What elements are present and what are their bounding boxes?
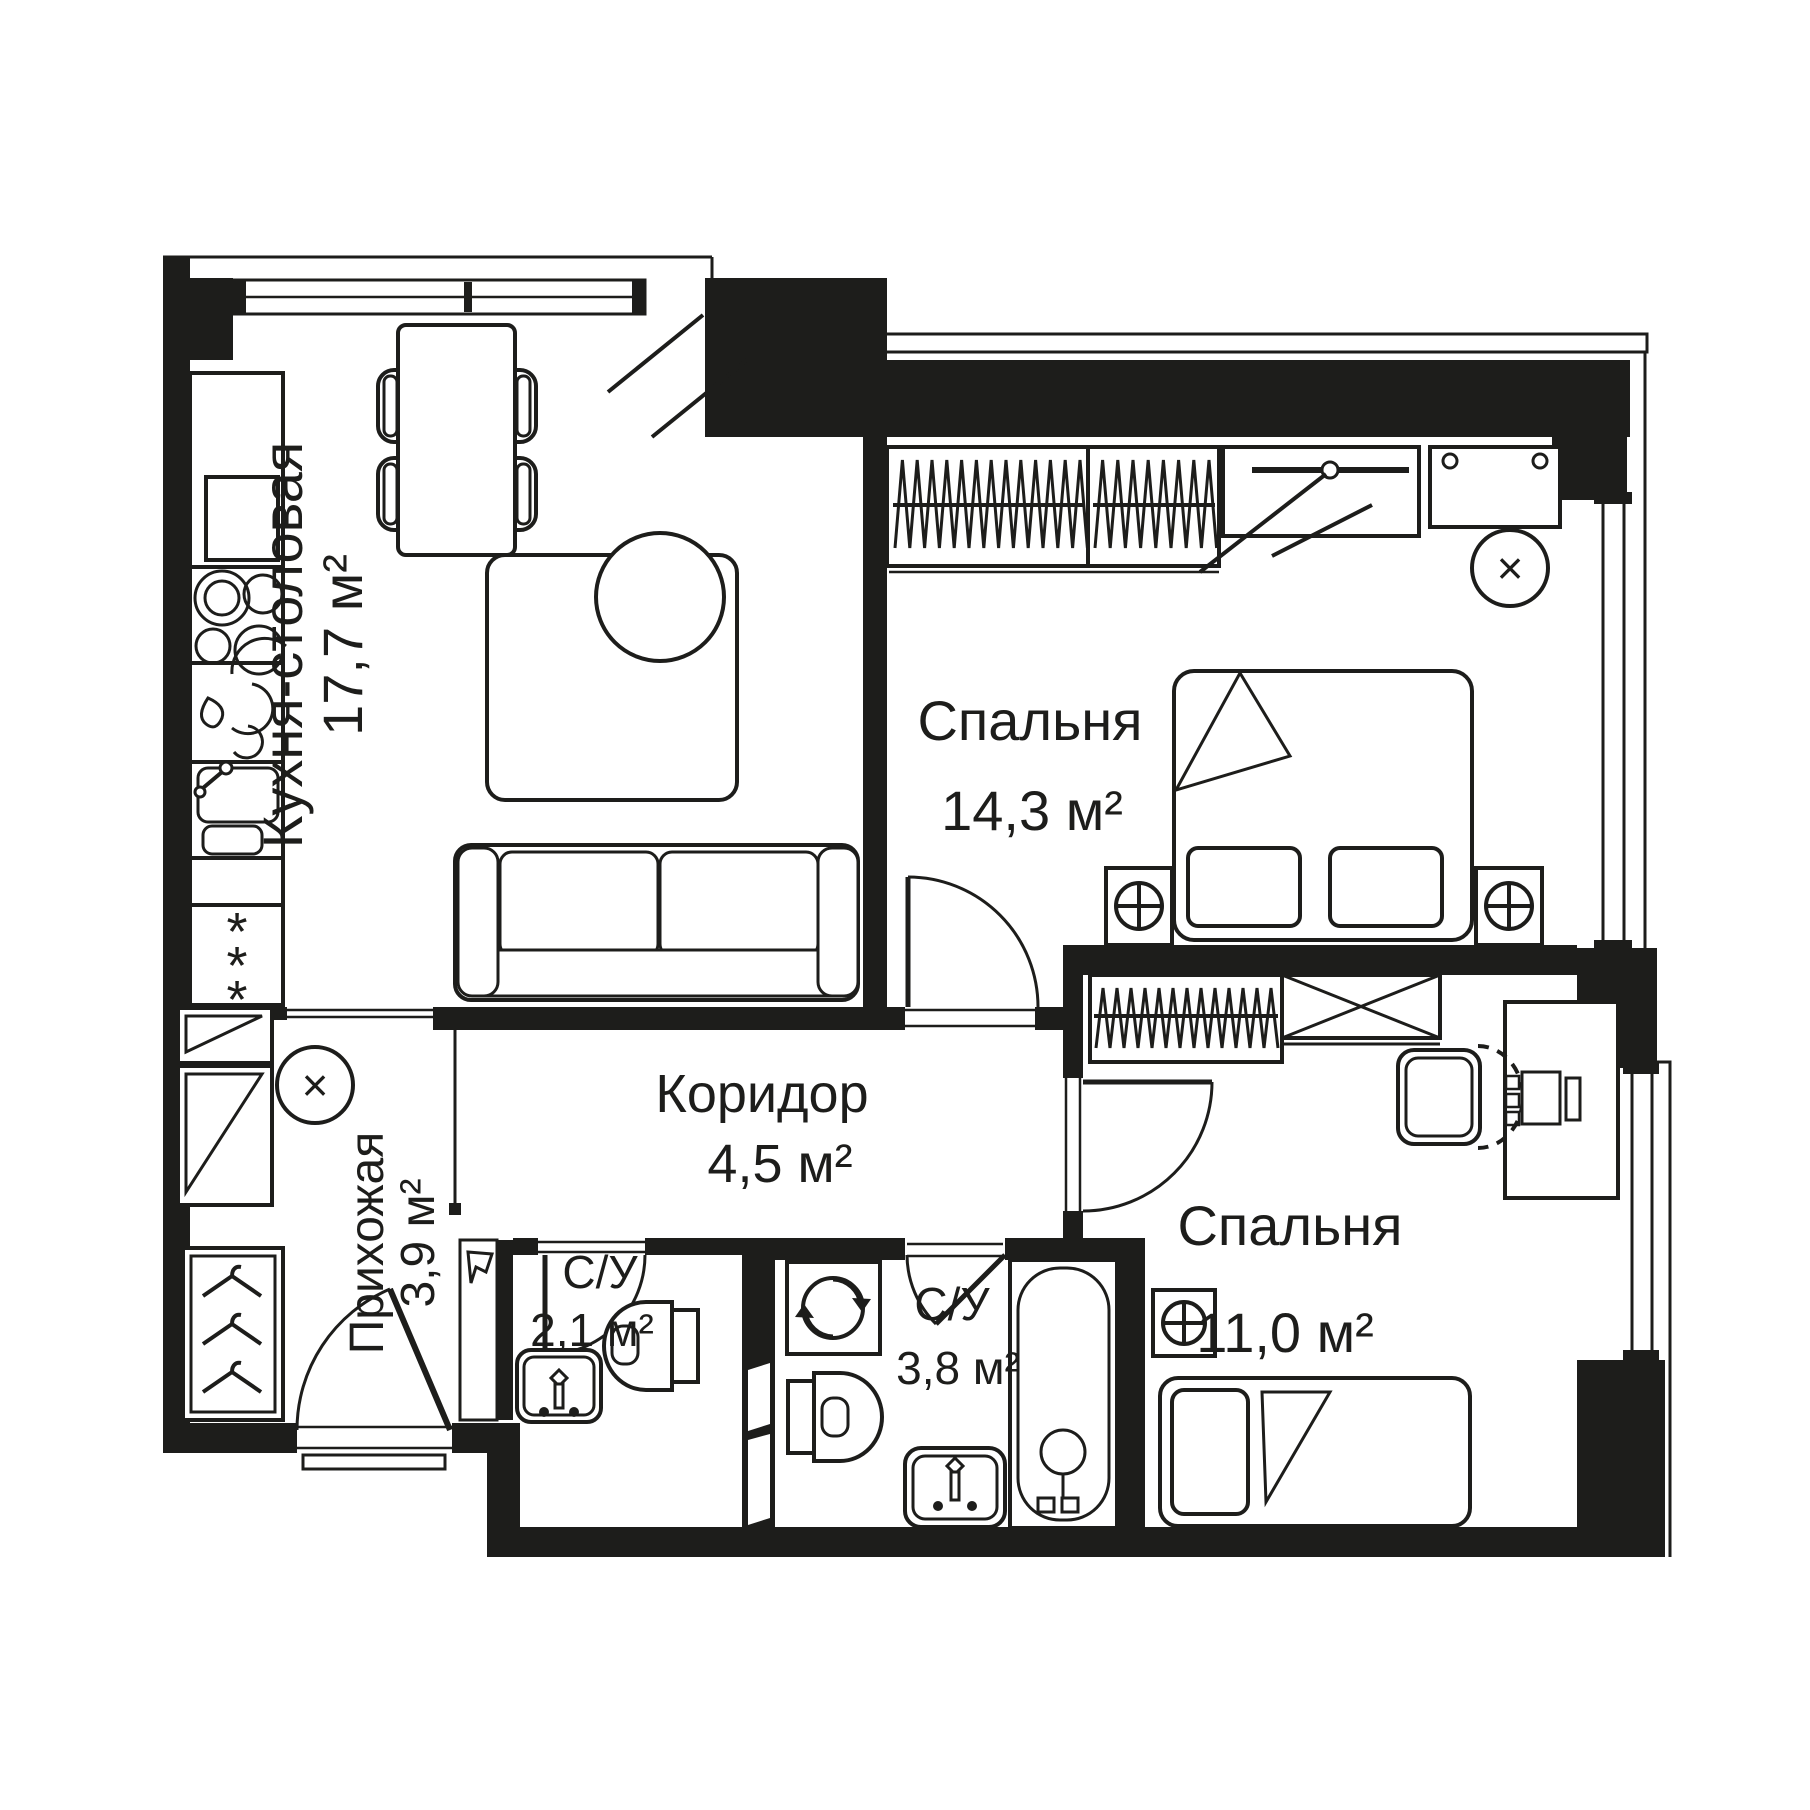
room-area: 17,7 м² <box>311 554 374 736</box>
room-name: С/У <box>914 1278 990 1330</box>
bedroom1-window <box>1594 492 1632 952</box>
vent-fan: × <box>1472 530 1548 606</box>
bedroom2-window <box>1623 1062 1659 1362</box>
room-area: 11,0 м² <box>1196 1301 1374 1364</box>
room-area: 2,1 м² <box>530 1304 654 1356</box>
wardrobe-bedroom1 <box>887 447 1219 572</box>
room-area: 4,5 м² <box>707 1134 852 1194</box>
room-name: Прихожая <box>341 1132 394 1354</box>
room-hallway: Прихожая 3,9 м² <box>341 1132 445 1354</box>
room-kitchen-dining: Кухня-столовая 17,7 м² <box>251 442 374 849</box>
floorplan-svg: * * * <box>0 0 1810 1810</box>
nightstand-radiator <box>1476 868 1542 945</box>
shaft-box <box>460 1240 497 1420</box>
single-bed <box>1160 1378 1470 1526</box>
room-name: Спальня <box>917 689 1142 752</box>
wardrobe-bedroom2 <box>1090 975 1282 1062</box>
room-area: 3,9 м² <box>392 1178 445 1307</box>
shaft-notches <box>748 1363 770 1525</box>
double-bed <box>1174 671 1472 940</box>
floor-plan: * * * <box>0 0 1810 1810</box>
room-name: Коридор <box>655 1064 868 1124</box>
bedroom2-door <box>1060 1078 1212 1211</box>
entrance-stoop <box>303 1455 445 1469</box>
room-bedroom-2: Спальня 11,0 м² <box>1177 1194 1402 1364</box>
shoe-cabinet <box>178 1008 272 1063</box>
pillow <box>1172 1390 1248 1514</box>
coffee-table <box>596 533 724 661</box>
room-area: 14,3 м² <box>941 779 1123 842</box>
kitchen-window <box>233 280 645 314</box>
shoe-cabinet <box>178 1066 272 1205</box>
toilet-icon <box>788 1373 882 1461</box>
washing-machine-icon <box>787 1262 880 1354</box>
bathtub <box>1010 1260 1117 1528</box>
dresser-mirror <box>1200 447 1419 572</box>
room-area: 3,8 м² <box>896 1342 1020 1394</box>
room-corridor: Коридор 4,5 м² <box>655 1064 868 1194</box>
nightstand-radiator <box>1106 868 1172 945</box>
room-name: С/У <box>562 1246 638 1298</box>
coat-hangers <box>183 1248 283 1420</box>
room-bedroom-1: Спальня 14,3 м² <box>917 689 1142 842</box>
bedroom1-door <box>905 877 1038 1032</box>
bathroom2-sink <box>905 1448 1005 1527</box>
room-name: Спальня <box>1177 1194 1402 1257</box>
pillow <box>1330 848 1442 926</box>
room-bathroom-2: С/У 3,8 м² <box>896 1278 1020 1394</box>
wardrobe-xbox <box>1282 975 1440 1044</box>
wall-shelf <box>1430 447 1560 527</box>
pillow <box>1188 848 1300 926</box>
bathroom1-sink <box>517 1350 601 1422</box>
sofa <box>455 845 858 1000</box>
vent-fan: × <box>277 1047 353 1123</box>
vent-icon: × <box>1497 542 1524 594</box>
kitchen-entry-opening <box>287 1010 433 1017</box>
dining-table <box>398 325 515 555</box>
vent-icon: × <box>302 1059 329 1111</box>
room-name: Кухня-столовая <box>251 442 314 849</box>
